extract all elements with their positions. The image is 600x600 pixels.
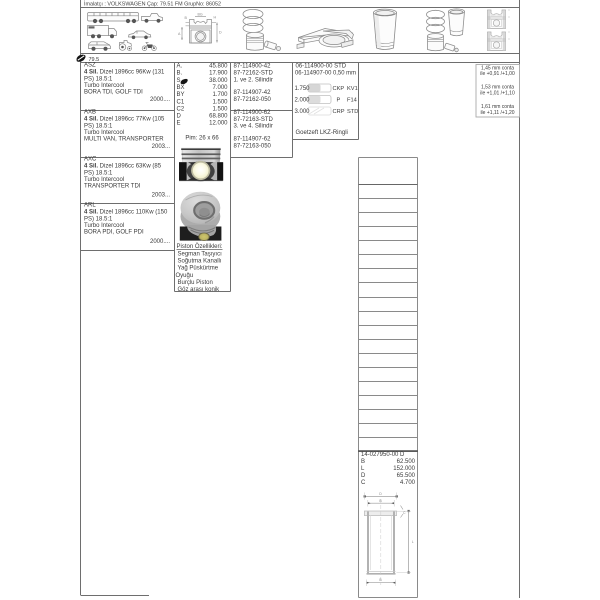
svg-text:4.700: 4.700 bbox=[400, 480, 416, 486]
svg-text:CKP: CKP bbox=[333, 86, 345, 92]
svg-text:STD: STD bbox=[347, 109, 358, 115]
svg-text:C1: C1 bbox=[177, 99, 185, 105]
svg-text:BY: BY bbox=[177, 92, 185, 98]
svg-text:D: D bbox=[219, 31, 222, 35]
svg-text:Oyuğu: Oyuğu bbox=[176, 273, 194, 279]
svg-text:D: D bbox=[177, 114, 182, 120]
svg-text:45.800: 45.800 bbox=[209, 64, 228, 70]
svg-text:3.000: 3.000 bbox=[295, 109, 311, 115]
svg-text:B.: B. bbox=[177, 71, 183, 77]
svg-text:Yağ Püskürtme: Yağ Püskürtme bbox=[178, 266, 219, 272]
svg-text:L: L bbox=[412, 540, 414, 544]
svg-text:Göz arası konik: Göz arası konik bbox=[178, 287, 221, 293]
svg-text:BX: BX bbox=[177, 85, 185, 91]
svg-text:E: E bbox=[177, 121, 181, 127]
svg-text:TRANSPORTER TDI: TRANSPORTER TDI bbox=[84, 184, 141, 190]
svg-text:Turbo Intercool: Turbo Intercool bbox=[84, 83, 124, 89]
svg-text:87-72162-STD: 87-72162-STD bbox=[234, 71, 274, 77]
svg-text:Segman Taşıyıcı: Segman Taşıyıcı bbox=[178, 252, 223, 258]
svg-text:A: A bbox=[178, 32, 181, 36]
svg-text:İmalatçı : VOLKSWAGEN Çap: 7: İmalatçı : VOLKSWAGEN Çap: 79.51 FM Grup… bbox=[84, 1, 221, 8]
svg-text:4 Sil. Dizel 1896cc 96Kw (131: 4 Sil. Dizel 1896cc 96Kw (131 bbox=[84, 70, 165, 76]
svg-text:06-114900-00 STD: 06-114900-00 STD bbox=[296, 64, 347, 70]
svg-text:Soğutma Kanallı: Soğutma Kanallı bbox=[178, 259, 222, 265]
svg-text:65.500: 65.500 bbox=[397, 473, 416, 479]
svg-text:B: B bbox=[361, 459, 365, 465]
svg-text:3. ve 4. Silindir: 3. ve 4. Silindir bbox=[234, 124, 273, 130]
svg-text:ASZ: ASZ bbox=[84, 63, 96, 69]
svg-text:Turbo Intercool: Turbo Intercool bbox=[84, 177, 124, 183]
svg-text:B: B bbox=[185, 16, 188, 20]
svg-text:F14: F14 bbox=[347, 98, 357, 104]
svg-text:2003...: 2003... bbox=[152, 144, 171, 150]
svg-text:1.750: 1.750 bbox=[295, 86, 311, 92]
svg-text:2000....: 2000.... bbox=[150, 97, 170, 103]
svg-text:BORA PDI, GOLF PDI: BORA PDI, GOLF PDI bbox=[84, 230, 144, 236]
svg-text:AXC: AXC bbox=[84, 157, 97, 163]
svg-text:Goetzeft LKZ-Ringli: Goetzeft LKZ-Ringli bbox=[296, 130, 348, 136]
svg-text:2003...: 2003... bbox=[152, 193, 171, 199]
svg-text:AXB: AXB bbox=[84, 110, 96, 116]
svg-text:D: D bbox=[361, 473, 366, 479]
svg-text:Pim: 26 x 66: Pim: 26 x 66 bbox=[185, 136, 219, 142]
svg-text:1.500: 1.500 bbox=[212, 106, 228, 112]
svg-text:S: S bbox=[177, 78, 181, 84]
svg-text:KV1: KV1 bbox=[347, 86, 358, 92]
svg-text:68.800: 68.800 bbox=[209, 114, 228, 120]
svg-text:1.500: 1.500 bbox=[212, 99, 228, 105]
svg-text:17.900: 17.900 bbox=[209, 71, 228, 77]
svg-text:4 Sil. Dizel 1896cc 63Kw (85: 4 Sil. Dizel 1896cc 63Kw (85 bbox=[84, 164, 162, 170]
svg-text:87-114900-62: 87-114900-62 bbox=[234, 110, 272, 116]
svg-text:PS) 18.5:1: PS) 18.5:1 bbox=[84, 124, 113, 130]
svg-text:2000....: 2000.... bbox=[150, 239, 170, 245]
svg-text:87-114907-42: 87-114907-42 bbox=[234, 90, 272, 96]
svg-text:ile +1,11 /+1,20: ile +1,11 /+1,20 bbox=[480, 110, 514, 116]
svg-text:12.000: 12.000 bbox=[209, 121, 228, 127]
svg-text:87-114907-62: 87-114907-62 bbox=[234, 136, 272, 142]
svg-text:PS) 18.5:1: PS) 18.5:1 bbox=[84, 171, 113, 177]
svg-text:BORA TDI, GOLF TDI: BORA TDI, GOLF TDI bbox=[84, 90, 143, 96]
svg-text:PS) 18.5:1: PS) 18.5:1 bbox=[84, 217, 113, 223]
svg-text:14-027950-00 D: 14-027950-00 D bbox=[361, 452, 405, 458]
svg-text:MULTI VAN, TRANSPORTER: MULTI VAN, TRANSPORTER bbox=[84, 137, 164, 143]
svg-text:4 Sil. Dizel 1896cc 77Kw (105: 4 Sil. Dizel 1896cc 77Kw (105 bbox=[84, 117, 165, 123]
svg-text:H: H bbox=[214, 16, 217, 20]
svg-text:A.: A. bbox=[177, 64, 183, 70]
svg-text:4 Sil. Dizel 1896cc 110Kw (15: 4 Sil. Dizel 1896cc 110Kw (150 bbox=[84, 210, 168, 216]
svg-text:2.000: 2.000 bbox=[295, 98, 311, 104]
svg-text:ile +0,91 /+1,00: ile +0,91 /+1,00 bbox=[480, 71, 515, 77]
svg-text:C2: C2 bbox=[177, 106, 185, 112]
svg-text:BG: BG bbox=[198, 13, 203, 17]
svg-text:1.700: 1.700 bbox=[212, 92, 228, 98]
svg-text:B: B bbox=[379, 499, 382, 503]
svg-text:B: B bbox=[379, 578, 382, 582]
svg-text:Turbo Intercool: Turbo Intercool bbox=[84, 223, 124, 229]
svg-text:87-72163-050: 87-72163-050 bbox=[234, 143, 272, 149]
svg-text:D: D bbox=[379, 492, 382, 496]
svg-text:87-72163-STD: 87-72163-STD bbox=[234, 117, 274, 123]
svg-text:152.000: 152.000 bbox=[393, 466, 415, 472]
svg-text:87-114900-42: 87-114900-42 bbox=[234, 64, 272, 70]
svg-text:1. ve 2. Silindir: 1. ve 2. Silindir bbox=[234, 77, 273, 83]
svg-text:C: C bbox=[361, 480, 366, 486]
svg-text:7.000: 7.000 bbox=[212, 85, 228, 91]
svg-text:Burçlu Piston: Burçlu Piston bbox=[178, 280, 213, 286]
svg-text:ARL: ARL bbox=[84, 203, 96, 209]
svg-text:ile +1,01 /+1,10: ile +1,01 /+1,10 bbox=[480, 91, 515, 97]
svg-text:Piston Özellikleri:: Piston Özellikleri: bbox=[177, 243, 223, 250]
svg-text:62.500: 62.500 bbox=[397, 459, 416, 465]
svg-text:C: C bbox=[403, 511, 406, 515]
svg-text:P: P bbox=[337, 98, 341, 104]
svg-text:Turbo Intercool: Turbo Intercool bbox=[84, 130, 124, 136]
svg-text:L: L bbox=[361, 466, 365, 472]
svg-text:38.000: 38.000 bbox=[209, 78, 228, 84]
svg-text:PS) 18.5:1: PS) 18.5:1 bbox=[84, 77, 113, 83]
svg-text:87-72162-050: 87-72162-050 bbox=[234, 97, 272, 103]
svg-text:06-114907-00 0,50 mm: 06-114907-00 0,50 mm bbox=[295, 71, 356, 77]
svg-text:CRP: CRP bbox=[333, 109, 345, 115]
